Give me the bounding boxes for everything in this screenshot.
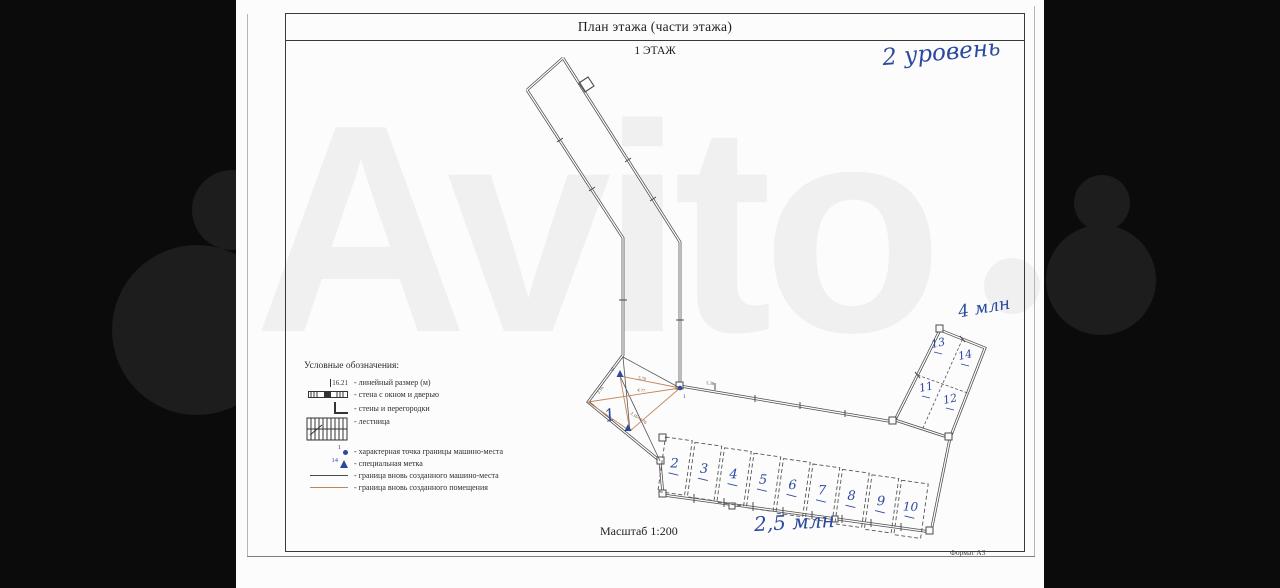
space-number: 9 <box>877 494 886 509</box>
boundary-point-markers: 2 1 <box>611 367 686 431</box>
special-mark-icon <box>617 370 624 377</box>
dimension-label: 5.38 <box>706 380 715 386</box>
legend-row: - граница вновь созданного машино-места <box>304 471 554 480</box>
legend-row: - лестница <box>304 417 554 441</box>
avito-photo-viewer: Avito План этажа (части этажа) 1 ЭТАЖ <box>0 0 1280 588</box>
space-number: 10 <box>903 499 919 514</box>
space-number: 13 <box>930 335 946 351</box>
boundary-point-icon <box>678 386 683 391</box>
legend-row: - стены и перегородки <box>304 402 554 414</box>
viewer-left-black-area <box>0 0 236 588</box>
space-number: 7 <box>818 483 828 498</box>
space-number: 3 <box>700 462 709 477</box>
legend-header: Условные обозначения: <box>304 361 554 371</box>
legend-row: - стена с окном и дверью <box>304 390 554 399</box>
space-number: 5 <box>759 473 768 488</box>
viewer-right-black-area <box>1044 0 1280 588</box>
walls <box>527 58 985 532</box>
stairs-icon <box>306 417 348 441</box>
point-number: 1 <box>683 394 686 400</box>
wall-window-door-icon <box>308 390 348 399</box>
legend: Условные обозначения: 16.21 - линейный р… <box>304 361 554 495</box>
point-number: 2 <box>611 367 614 373</box>
avito-watermark-circle <box>1046 225 1156 335</box>
space-number: 11 <box>918 379 934 395</box>
walls-partitions-icon <box>334 402 348 414</box>
space-number: 8 <box>847 489 856 504</box>
new-parking-boundary-line-icon <box>310 475 348 476</box>
legend-row: 1 - характерная точка границы машино-мес… <box>304 447 554 456</box>
dimension-label: 5.70 <box>638 375 648 382</box>
floorplan-drawing: 5.70 4.77 2.16 2.16+4.76 5.38 2 1 1 2 <box>236 0 1044 588</box>
space-number: 6 <box>788 478 797 493</box>
avito-watermark-circle <box>112 245 236 415</box>
dimension-label: 4.77 <box>637 387 647 394</box>
special-mark-icon: 14 <box>332 460 349 468</box>
floorplan-photo[interactable]: Avito План этажа (части этажа) 1 ЭТАЖ <box>236 0 1044 588</box>
space-number: 1 <box>602 405 617 427</box>
legend-row: 14 - специальная метка <box>304 459 554 468</box>
space-number: 4 <box>728 467 738 482</box>
format-label: Формат А3 <box>950 548 985 557</box>
scale-label: Масштаб 1:200 <box>600 524 678 539</box>
dimension-label: 2.16 <box>596 385 605 395</box>
new-room-boundary-line-icon <box>310 487 348 488</box>
boundary-point-icon: 1 <box>338 448 348 455</box>
linear-dimension-icon: 16.21 <box>330 379 348 387</box>
space-number: 12 <box>942 391 958 407</box>
handwritten-price-row: 2,5 млн <box>753 508 835 536</box>
avito-watermark-circle <box>1074 175 1130 231</box>
legend-row: 16.21 - линейный размер (м) <box>304 378 554 387</box>
legend-row: - граница вновь созданного помещения <box>304 483 554 492</box>
space-number: 14 <box>957 347 973 363</box>
avito-watermark-circle <box>192 170 236 250</box>
parking-block: 11 12 13 14 <box>918 335 974 429</box>
space-number: 2 <box>669 456 679 471</box>
